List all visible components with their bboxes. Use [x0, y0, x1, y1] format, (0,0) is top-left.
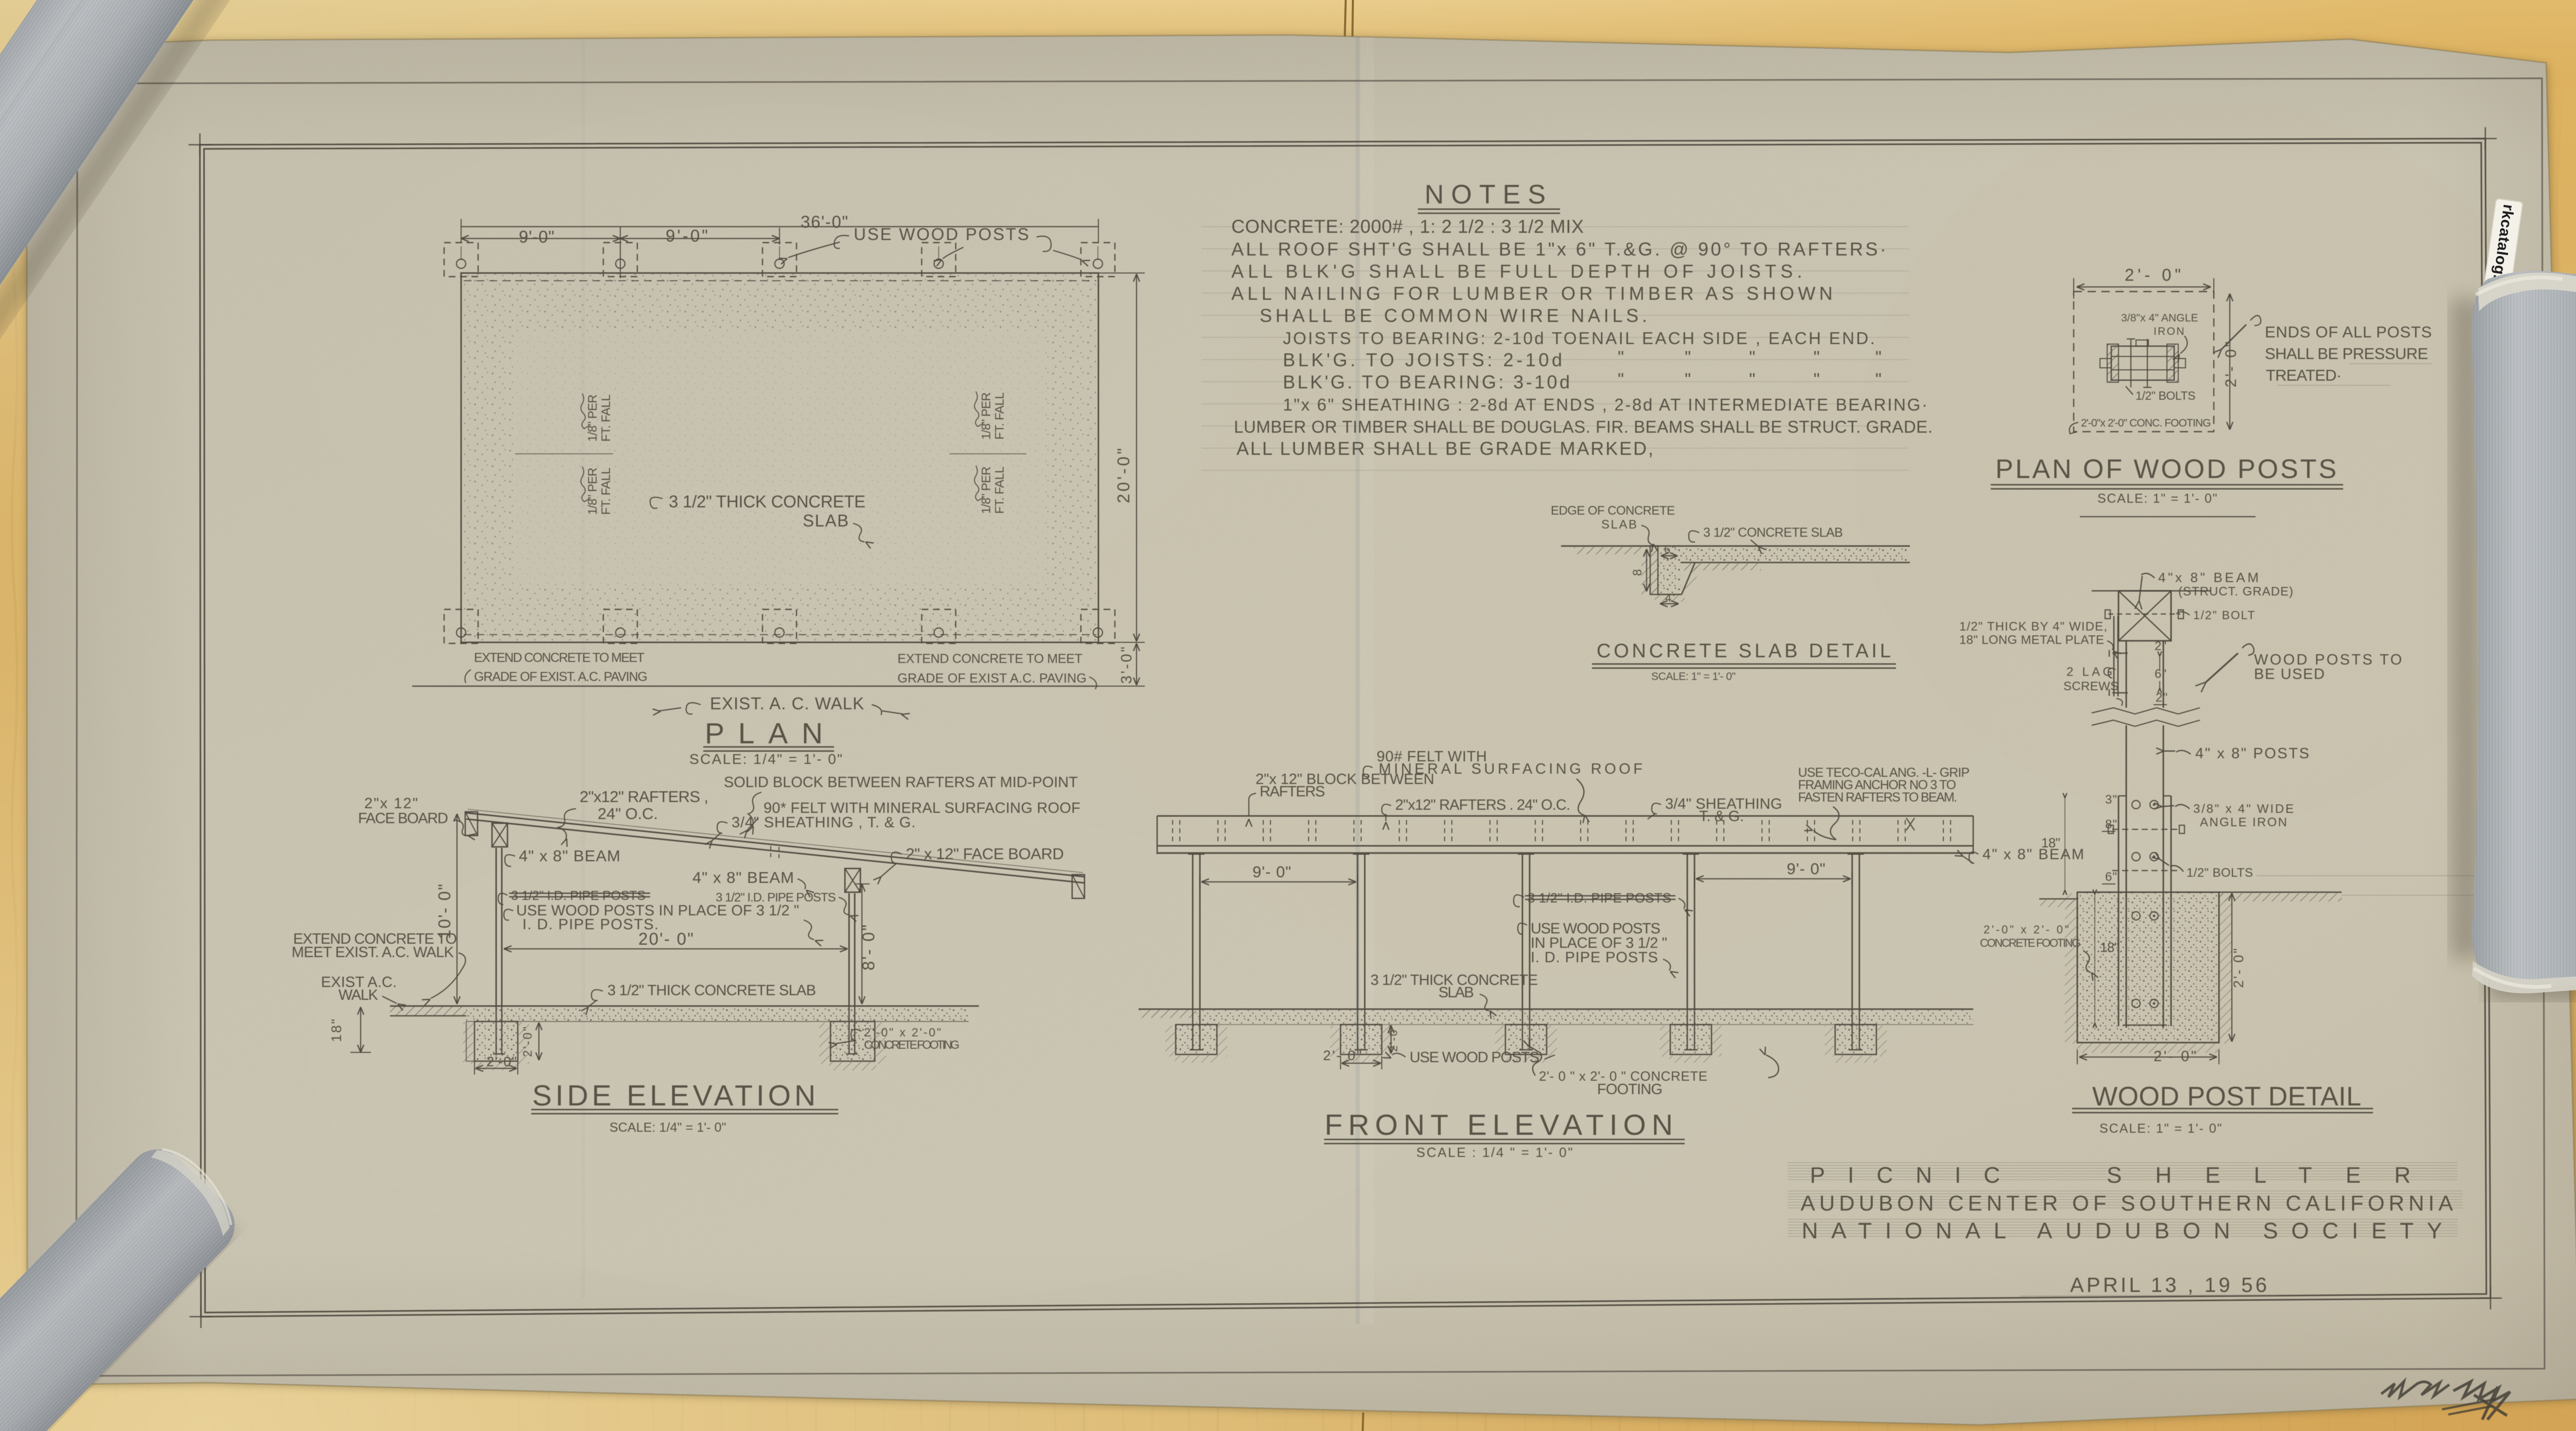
svg-text:2'-0": 2'-0" — [521, 1025, 535, 1057]
svg-text:3 1/2" I.D. PIPE POSTS: 3 1/2" I.D. PIPE POSTS — [511, 889, 646, 903]
svg-text:3": 3" — [2105, 793, 2119, 807]
svg-text:FT. FALL: FT. FALL — [599, 393, 613, 442]
svg-text:MEET EXIST. A.C. WALK: MEET EXIST. A.C. WALK — [292, 944, 455, 961]
svg-text:8": 8" — [2105, 817, 2119, 831]
svg-text:SIDE ELEVATION: SIDE ELEVATION — [532, 1079, 817, 1112]
svg-text:SLAB: SLAB — [803, 511, 850, 530]
svg-text:ALL LUMBER SHALL BE GRADE MARK: ALL LUMBER SHALL BE GRADE MARKED, — [1236, 438, 1655, 459]
svg-text:": " — [1749, 370, 1757, 389]
svg-text:RAFTERS: RAFTERS — [1260, 783, 1327, 800]
svg-text:": " — [1814, 348, 1821, 367]
svg-text:18": 18" — [329, 1017, 344, 1042]
svg-text:36'-0": 36'-0" — [801, 212, 850, 231]
svg-text:BLK'G. TO BEARING: 3-10d: BLK'G. TO BEARING: 3-10d — [1283, 371, 1571, 393]
svg-text:IRON: IRON — [2154, 326, 2184, 337]
svg-text:ENDS OF ALL POSTS: ENDS OF ALL POSTS — [2265, 323, 2433, 341]
svg-text:NATIONAL AUDUBON SOCIETY: NATIONAL AUDUBON SOCIETY — [1802, 1218, 2452, 1243]
svg-text:4': 4' — [1665, 591, 1676, 604]
svg-text:CONCRETE FOOTING: CONCRETE FOOTING — [1980, 936, 2081, 949]
svg-text:SHALL BE PRESSURE: SHALL BE PRESSURE — [2265, 345, 2430, 363]
svg-text:1/8" PER: 1/8" PER — [586, 466, 600, 515]
svg-text:1/8" PER: 1/8" PER — [979, 465, 993, 514]
svg-text:20'-0": 20'-0" — [1114, 447, 1133, 503]
svg-text:2'- 0": 2'- 0" — [2231, 947, 2246, 988]
svg-text:": " — [1875, 348, 1883, 367]
svg-text:I. D. PIPE POSTS: I. D. PIPE POSTS — [1531, 949, 1659, 966]
svg-text:6": 6" — [1664, 543, 1677, 556]
svg-text:ANGLE IRON: ANGLE IRON — [2200, 815, 2287, 829]
svg-text:1/2" BOLTS: 1/2" BOLTS — [2187, 866, 2253, 880]
svg-text:2'-0"x 2'-0" CONC. FOOTING: 2'-0"x 2'-0" CONC. FOOTING — [2081, 417, 2211, 429]
svg-text:": " — [1618, 348, 1625, 367]
svg-text:2"x12" RAFTERS . 24" O.C.: 2"x12" RAFTERS . 24" O.C. — [1395, 797, 1572, 813]
svg-text:9'- 0": 9'- 0" — [1787, 860, 1827, 878]
svg-text:NOTES: NOTES — [1425, 180, 1552, 210]
svg-text:SCALE: 1/4" = 1'- 0": SCALE: 1/4" = 1'- 0" — [609, 1120, 726, 1135]
svg-text:SCALE: 1" = 1'- 0": SCALE: 1" = 1'- 0" — [1651, 671, 1736, 683]
svg-text:2'- 0": 2'- 0" — [2223, 340, 2240, 387]
svg-text:SCALE : 1/4 " = 1'- 0": SCALE : 1/4 " = 1'- 0" — [1416, 1145, 1573, 1160]
svg-text:8'- 0": 8'- 0" — [859, 923, 878, 970]
svg-text:6": 6" — [2155, 667, 2168, 681]
svg-text:3 1/2" THICK CONCRETE SLAB: 3 1/2" THICK CONCRETE SLAB — [607, 982, 818, 999]
svg-text:AUDUBON CENTER OF SOUTHERN CAL: AUDUBON CENTER OF SOUTHERN CALIFORNIA — [1801, 1191, 2455, 1215]
svg-text:": " — [1685, 370, 1692, 389]
svg-text:GRADE OF EXIST A.C. PAVING: GRADE OF EXIST A.C. PAVING — [897, 671, 1087, 686]
svg-text:LUMBER OR TIMBER SHALL BE DOUG: LUMBER OR TIMBER SHALL BE DOUGLAS. FIR. … — [1234, 417, 1933, 436]
svg-text:SHALL BE COMMON WIRE NAILS.: SHALL BE COMMON WIRE NAILS. — [1260, 305, 1649, 326]
svg-text:18": 18" — [2041, 835, 2062, 850]
svg-text:20'- 0": 20'- 0" — [638, 929, 695, 948]
svg-text:4" x 8" POSTS: 4" x 8" POSTS — [2195, 745, 2311, 762]
svg-text:3/8" x 4" WIDE: 3/8" x 4" WIDE — [2193, 802, 2294, 816]
svg-text:CONCRETE: 2000# , 1: 2 1/2 :: CONCRETE: 2000# , 1: 2 1/2 : 3 1/2 MIX — [1231, 216, 1585, 237]
svg-text:2'-0": 2'-0" — [486, 1054, 518, 1069]
svg-text:BE USED: BE USED — [2254, 666, 2326, 683]
svg-text:18" LONG METAL PLATE: 18" LONG METAL PLATE — [1959, 633, 2105, 647]
svg-text:WALK: WALK — [338, 987, 380, 1003]
svg-text:ALL NAILING FOR LUMBER OR TIMB: ALL NAILING FOR LUMBER OR TIMBER AS SHOW… — [1231, 283, 1834, 304]
svg-text:6": 6" — [2105, 870, 2119, 884]
svg-text:8: 8 — [1631, 568, 1645, 576]
svg-text:9'-0": 9'-0" — [519, 227, 556, 246]
svg-text:": " — [1618, 370, 1625, 389]
svg-text:2"x 12": 2"x 12" — [364, 795, 419, 812]
svg-text:CONCRETE SLAB DETAIL: CONCRETE SLAB DETAIL — [1597, 640, 1892, 662]
svg-text:FT. FALL: FT. FALL — [993, 465, 1007, 514]
svg-text:SOLID BLOCK BETWEEN RAFTERS: SOLID BLOCK BETWEEN RAFTERS AT MID-POINT — [724, 774, 1079, 791]
svg-text:1/2" BOLTS: 1/2" BOLTS — [2136, 389, 2196, 402]
svg-text:4" x 8" BEAM: 4" x 8" BEAM — [692, 868, 795, 887]
svg-text:2'- 0": 2'- 0" — [1323, 1048, 1363, 1063]
svg-text:SCALE: 1/4" = 1'- 0": SCALE: 1/4" = 1'- 0" — [689, 751, 843, 767]
svg-text:PLAN OF WOOD POSTS: PLAN OF WOOD POSTS — [1995, 454, 2337, 484]
svg-text:PLAN: PLAN — [705, 717, 833, 750]
svg-text:9'-0": 9'-0" — [666, 226, 709, 245]
svg-text:3 1/2" THICK CONCRETE: 3 1/2" THICK CONCRETE — [669, 492, 867, 511]
svg-text:": " — [1685, 348, 1692, 367]
svg-text:FACE BOARD: FACE BOARD — [358, 810, 450, 827]
svg-text:SHELTER: SHELTER — [2107, 1163, 2442, 1188]
svg-text:1/8" PER: 1/8" PER — [979, 391, 993, 440]
svg-text:18": 18" — [2100, 940, 2121, 955]
svg-text:24" O.C.: 24" O.C. — [598, 805, 659, 823]
svg-text:USE WOOD POSTS: USE WOOD POSTS — [1410, 1049, 1541, 1066]
svg-text:1/8" PER: 1/8" PER — [586, 393, 600, 442]
svg-text:FOOTING: FOOTING — [1597, 1081, 1664, 1098]
svg-text:4" x 8" BEAM: 4" x 8" BEAM — [519, 847, 622, 865]
svg-text:ALL ROOF SHT'G SHALL BE 1"x 6": ALL ROOF SHT'G SHALL BE 1"x 6" T.&G. @ 9… — [1231, 238, 1888, 260]
svg-text:3'-0": 3'-0" — [1118, 645, 1135, 684]
svg-text:2"x12" RAFTERS ,: 2"x12" RAFTERS , — [580, 788, 710, 806]
svg-text:SCALE: 1" = 1'- 0": SCALE: 1" = 1'- 0" — [2097, 491, 2217, 506]
svg-text:": " — [1749, 348, 1757, 367]
svg-text:3/4" SHEATHING , T. & G.: 3/4" SHEATHING , T. & G. — [732, 814, 917, 831]
svg-text:3 1/2" I.D. PIPE POSTS: 3 1/2" I.D. PIPE POSTS — [1528, 890, 1672, 906]
svg-text:": " — [1875, 370, 1883, 389]
svg-text:1/2" THICK BY 4" WIDE,: 1/2" THICK BY 4" WIDE, — [1959, 620, 2108, 634]
svg-text:": " — [1814, 370, 1821, 389]
svg-text:EDGE OF CONCRETE: EDGE OF CONCRETE — [1551, 504, 1675, 518]
svg-text:TREATED·: TREATED· — [2266, 366, 2343, 384]
svg-text:4" x 8" BEAM: 4" x 8" BEAM — [1982, 846, 2086, 863]
svg-text:2'- 0": 2'- 0" — [2154, 1048, 2198, 1065]
svg-text:SLAB: SLAB — [1601, 518, 1637, 532]
svg-text:2": 2" — [2155, 639, 2168, 653]
svg-text:JOISTS TO BEARING: 2-10d TOENA: JOISTS TO BEARING: 2-10d TOENAIL EACH SI… — [1283, 329, 1875, 348]
svg-text:WOOD POST DETAIL: WOOD POST DETAIL — [2092, 1082, 2362, 1112]
svg-text:1/2" BOLT: 1/2" BOLT — [2193, 608, 2255, 622]
svg-text:3/8"x 4" ANGLE: 3/8"x 4" ANGLE — [2121, 312, 2198, 324]
svg-text:APRIL 13 , 19 56: APRIL 13 , 19 56 — [2070, 1274, 2268, 1297]
svg-text:USE WOOD POSTS: USE WOOD POSTS — [854, 225, 1030, 244]
svg-text:T. & G.: T. & G. — [1699, 808, 1745, 825]
svg-text:SLAB: SLAB — [1438, 984, 1476, 1001]
svg-text:FT. FALL: FT. FALL — [993, 391, 1007, 440]
svg-text:EXTEND CONCRETE TO MEET: EXTEND CONCRETE TO MEET — [474, 651, 645, 665]
svg-text:9'- 0": 9'- 0" — [1252, 863, 1293, 881]
svg-text:FASTEN RAFTERS TO BEAM.: FASTEN RAFTERS TO BEAM. — [1798, 790, 1959, 805]
svg-text:BLK'G. TO JOISTS: 2-10d: BLK'G. TO JOISTS: 2-10d — [1283, 349, 1564, 370]
svg-text:SCALE: 1" = 1'- 0": SCALE: 1" = 1'- 0" — [2099, 1121, 2222, 1136]
svg-text:GRADE OF EXIST. A.C. PAVIN: GRADE OF EXIST. A.C. PAVING — [474, 670, 648, 684]
svg-text:EXIST. A. C. WALK: EXIST. A. C. WALK — [710, 694, 866, 713]
svg-text:3 1/2" CONCRETE SLAB: 3 1/2" CONCRETE SLAB — [1703, 525, 1843, 540]
svg-text:SCREWS: SCREWS — [2063, 679, 2119, 693]
svg-text:2'-0" x 2'-0": 2'-0" x 2'-0" — [864, 1026, 941, 1039]
svg-text:CONCRETE FOOTING: CONCRETE FOOTING — [864, 1038, 960, 1051]
svg-text:2" x 12" FACE BOARD: 2" x 12" FACE BOARD — [906, 845, 1065, 863]
svg-text:(STRUCT. GRADE): (STRUCT. GRADE) — [2178, 585, 2294, 599]
svg-text:2'-0" x 2'- 0": 2'-0" x 2'- 0" — [1984, 923, 2069, 936]
svg-text:FT. FALL: FT. FALL — [599, 466, 613, 515]
svg-text:EXTEND CONCRETE TO MEET: EXTEND CONCRETE TO MEET — [897, 652, 1083, 666]
svg-text:PICNIC: PICNIC — [1810, 1163, 2021, 1188]
svg-text:2'-0": 2'-0" — [1387, 1023, 1400, 1052]
